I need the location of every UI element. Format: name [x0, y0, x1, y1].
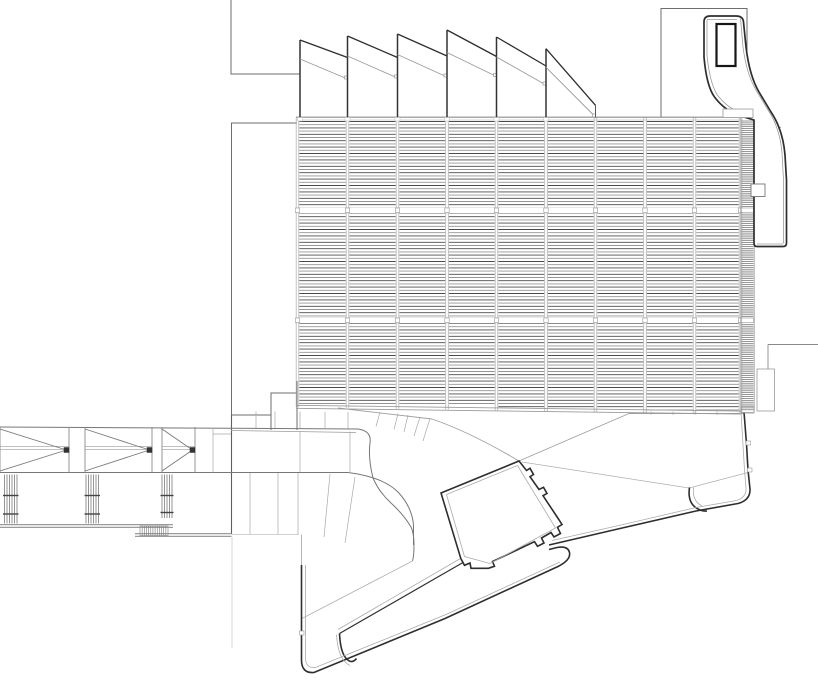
- misc-rect-edge-joint-tick-3: [300, 631, 305, 635]
- louver-strip: [741, 118, 754, 414]
- misc-rect-right-lower-panel: [757, 369, 775, 411]
- tower-shaft: [717, 24, 736, 66]
- sawtooth-monitors: [298, 30, 596, 121]
- misc-rect-edge-joint-tick-1: [746, 441, 751, 445]
- walkway-gray-lines: [0, 525, 302, 648]
- right-lower-panel: [757, 369, 775, 411]
- misc-rect-edge-joint-tick-2: [748, 468, 753, 472]
- bridge-truss: [0, 427, 195, 473]
- louver-roof: [295, 117, 755, 414]
- roof-plan-drawing: [0, 0, 818, 682]
- misc-rect-strip-top-joint-box: [723, 109, 753, 118]
- roof-plan-page: [0, 0, 818, 682]
- edge-joint-tick-3: [300, 631, 305, 635]
- edge-joint-tick-2: [748, 468, 753, 472]
- support-posts: [3, 475, 174, 524]
- plaza-outline-light: [306, 412, 747, 668]
- courtyard-square-inner: [447, 466, 556, 564]
- misc-rect-hatch-symbol-box: [751, 184, 765, 197]
- courtyard-square-heavy: [441, 461, 562, 568]
- hatch-symbol-box: [751, 184, 765, 197]
- top-left-outline: [231, 0, 747, 534]
- plaza-outline-heavy: [302, 412, 751, 673]
- strip-top-joint-box: [723, 109, 753, 118]
- walkway-band: [0, 408, 748, 619]
- edge-joint-tick-1: [746, 441, 751, 445]
